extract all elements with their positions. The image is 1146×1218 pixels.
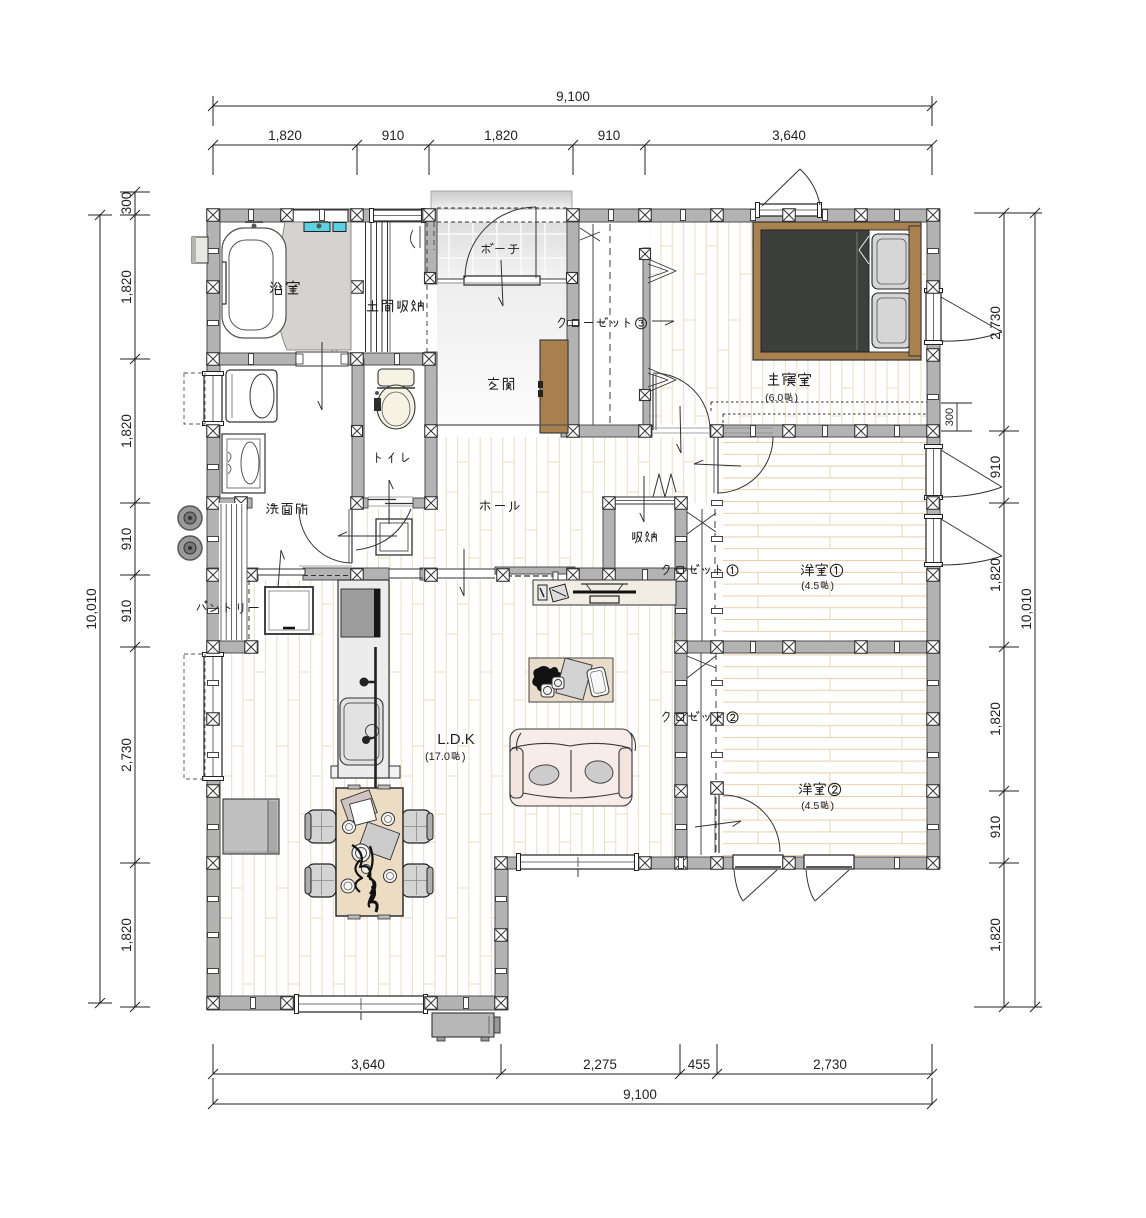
svg-text:2,730: 2,730	[988, 306, 1003, 340]
svg-text:): )	[831, 580, 835, 592]
svg-text:): )	[831, 800, 835, 812]
svg-text:(4.5: (4.5	[801, 580, 819, 592]
svg-text:1,820: 1,820	[268, 128, 302, 143]
svg-text:3,640: 3,640	[351, 1057, 385, 1072]
svg-text:(6.0: (6.0	[765, 392, 783, 404]
svg-text:): )	[462, 751, 466, 763]
svg-text:(17.0: (17.0	[425, 751, 450, 763]
svg-text:10,010: 10,010	[84, 588, 99, 629]
svg-text:(4.5: (4.5	[801, 800, 819, 812]
svg-text:2,730: 2,730	[813, 1057, 847, 1072]
svg-text:9,100: 9,100	[623, 1087, 657, 1102]
svg-text:300: 300	[944, 408, 956, 426]
svg-text:910: 910	[988, 816, 1003, 839]
svg-text:2,730: 2,730	[119, 738, 134, 772]
svg-text:910: 910	[988, 456, 1003, 479]
svg-text:3,640: 3,640	[772, 128, 806, 143]
svg-text:L.D.K: L.D.K	[437, 731, 475, 748]
svg-text:1,820: 1,820	[988, 558, 1003, 592]
svg-text:1,820: 1,820	[119, 414, 134, 448]
svg-text:9,100: 9,100	[556, 89, 590, 104]
svg-text:455: 455	[688, 1057, 711, 1072]
svg-text:): )	[795, 392, 799, 404]
svg-text:1,820: 1,820	[988, 918, 1003, 952]
svg-text:1,820: 1,820	[988, 702, 1003, 736]
svg-text:1,820: 1,820	[119, 918, 134, 952]
svg-text:1,820: 1,820	[484, 128, 518, 143]
svg-text:300: 300	[119, 192, 134, 215]
svg-text:910: 910	[598, 128, 621, 143]
svg-text:910: 910	[119, 600, 134, 623]
svg-text:2,275: 2,275	[583, 1057, 617, 1072]
svg-text:10,010: 10,010	[1019, 588, 1034, 629]
svg-text:1,820: 1,820	[119, 270, 134, 304]
svg-text:910: 910	[119, 528, 134, 551]
svg-text:910: 910	[382, 128, 405, 143]
